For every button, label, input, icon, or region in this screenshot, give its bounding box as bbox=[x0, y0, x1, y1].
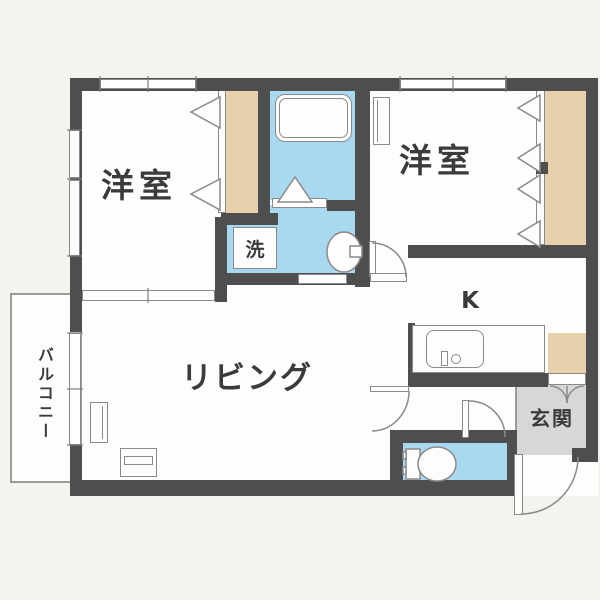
closet-left-chevron-1 bbox=[191, 97, 220, 128]
door-arc-storage-right bbox=[567, 386, 584, 403]
living-label: リビング bbox=[181, 353, 313, 398]
door-arc-storage-left bbox=[550, 386, 567, 403]
bedroom-left-label: 洋室 bbox=[101, 159, 177, 207]
washbasin-faucet bbox=[350, 246, 362, 257]
door-arc-living-hall bbox=[372, 391, 409, 431]
toilet-tank-tab-2 bbox=[403, 467, 406, 474]
door-arc-front-door bbox=[521, 457, 578, 514]
toilet-tank-tab-1 bbox=[403, 452, 406, 459]
closet-right-chevron-4 bbox=[518, 221, 540, 247]
balcony-label: バルコニー bbox=[32, 347, 56, 442]
bedroom-right-label: 洋室 bbox=[399, 134, 475, 182]
closet-left-chevron-2 bbox=[191, 179, 220, 210]
closet-right-chevron-3 bbox=[518, 175, 540, 203]
bathroom-door-triangle bbox=[278, 177, 312, 202]
kitchen-label: K bbox=[461, 288, 479, 314]
floorplan-canvas: 洗 bbox=[0, 0, 600, 600]
entrance-label: 玄関 bbox=[530, 403, 574, 432]
toilet-bowl bbox=[418, 447, 456, 481]
closet-right-chevron-1 bbox=[518, 95, 540, 121]
door-arc-hall-toilet bbox=[469, 401, 505, 437]
door-arc-bedroom-right bbox=[372, 243, 406, 277]
symbols-overlay bbox=[0, 0, 600, 600]
closet-right-chevron-2 bbox=[518, 144, 540, 172]
